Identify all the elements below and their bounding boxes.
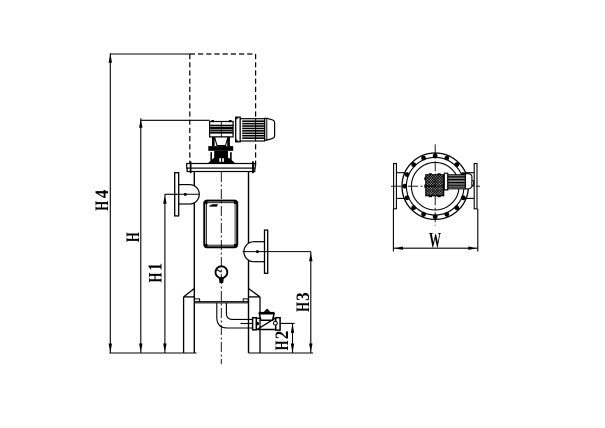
- svg-text:W: W: [429, 228, 441, 251]
- svg-text:H: H: [90, 201, 113, 211]
- svg-text:H: H: [144, 273, 167, 283]
- svg-text:H: H: [270, 340, 293, 350]
- svg-text:2: 2: [271, 331, 292, 340]
- svg-text:H: H: [121, 232, 144, 242]
- svg-text:1: 1: [144, 263, 166, 271]
- svg-text:3: 3: [292, 292, 313, 301]
- svg-text:H: H: [291, 302, 314, 312]
- svg-text:4: 4: [91, 190, 112, 199]
